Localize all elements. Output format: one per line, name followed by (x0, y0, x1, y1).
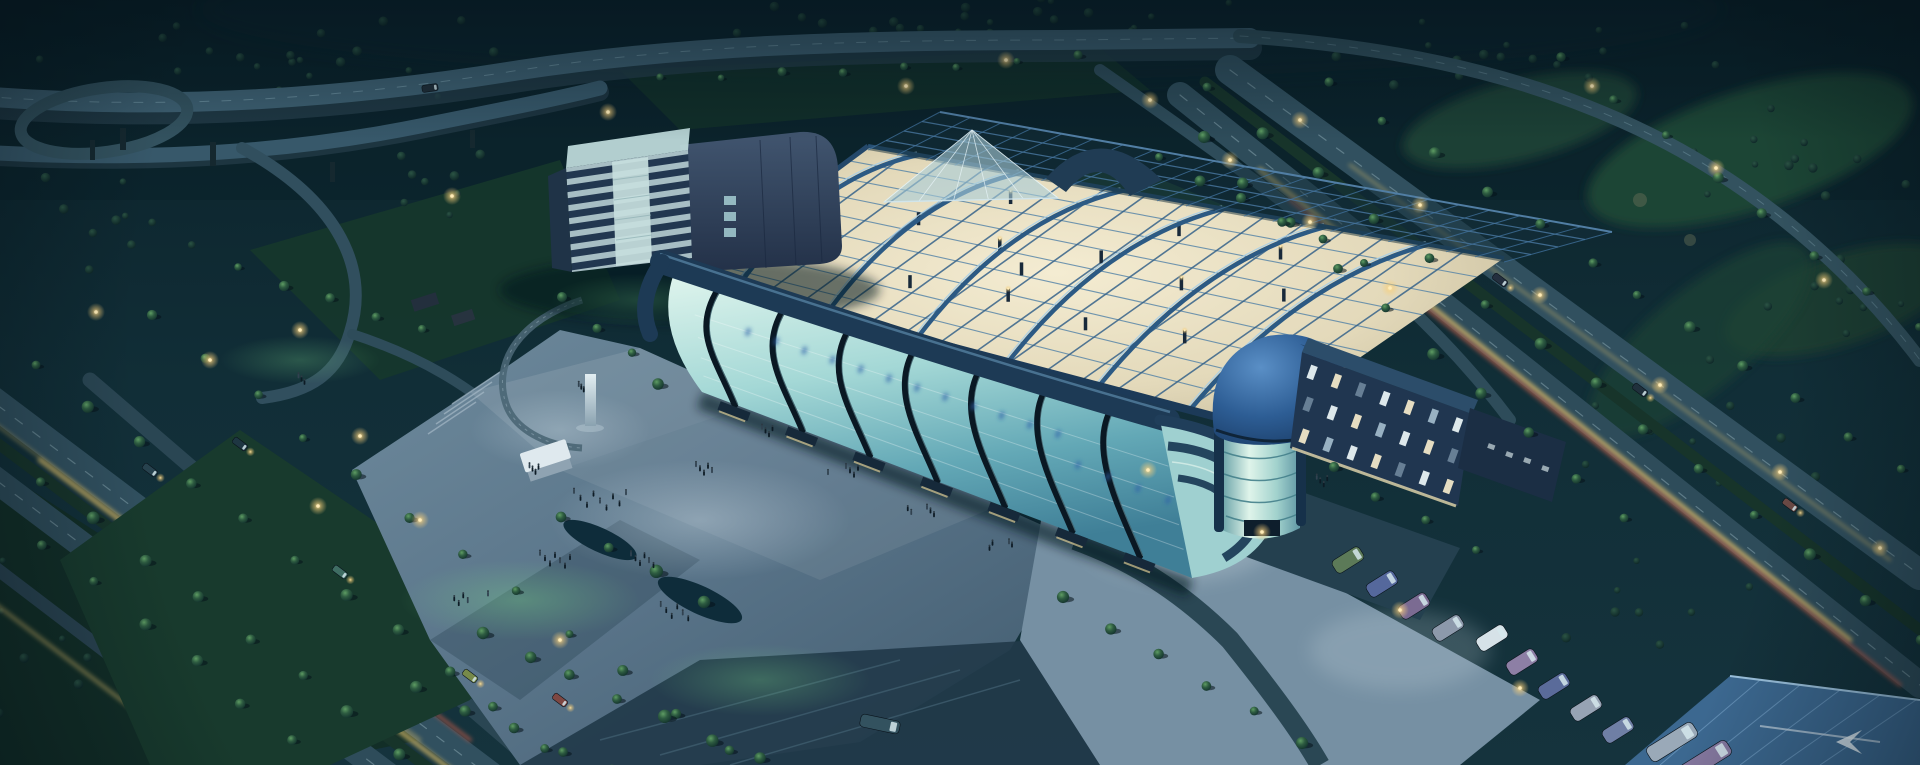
rendering-canvas (0, 0, 1920, 765)
architectural-rendering (0, 0, 1920, 765)
top-darkening (0, 0, 1920, 140)
